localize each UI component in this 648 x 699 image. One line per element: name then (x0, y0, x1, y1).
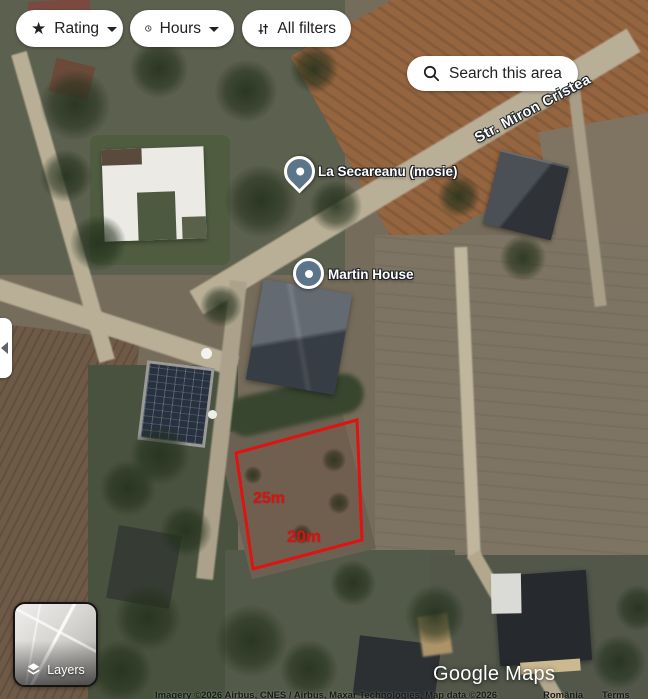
marker-label-martin-house[interactable]: Martin House (328, 267, 414, 282)
marker-label-la-secareanu[interactable]: La Secareanu (mosie) (318, 164, 458, 179)
plot-height-label: 25m (253, 490, 285, 508)
map-marker-martin-house[interactable] (293, 258, 324, 289)
satellite-map[interactable]: 25m 20m Str. Miron Cristea La Secareanu … (0, 0, 648, 699)
plot-width-label: 20m (287, 527, 321, 547)
google-maps-window: 25m 20m Str. Miron Cristea La Secareanu … (0, 0, 648, 699)
